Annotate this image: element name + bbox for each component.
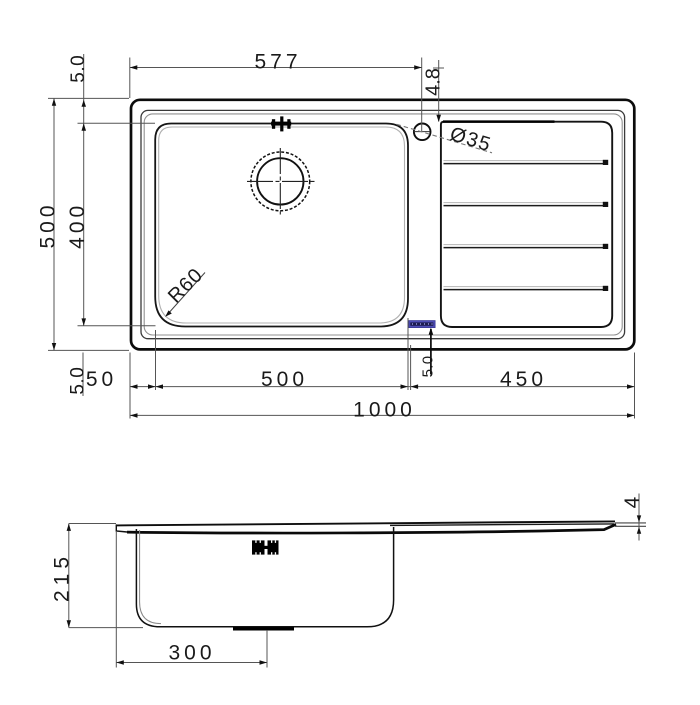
- svg-text:500: 500: [36, 201, 59, 248]
- svg-text:50: 50: [86, 368, 117, 391]
- svg-text:400: 400: [66, 202, 89, 249]
- svg-text:5.0: 5.0: [68, 55, 89, 83]
- svg-text:577: 577: [254, 51, 301, 74]
- svg-text:4.8: 4.8: [422, 68, 444, 96]
- svg-text:300: 300: [168, 642, 215, 665]
- svg-text:450: 450: [500, 368, 547, 391]
- svg-text:5.0: 5.0: [419, 356, 436, 378]
- svg-text:1000: 1000: [353, 399, 416, 422]
- svg-text:500: 500: [261, 368, 308, 391]
- svg-text:215: 215: [51, 552, 74, 602]
- svg-text:4: 4: [621, 493, 644, 509]
